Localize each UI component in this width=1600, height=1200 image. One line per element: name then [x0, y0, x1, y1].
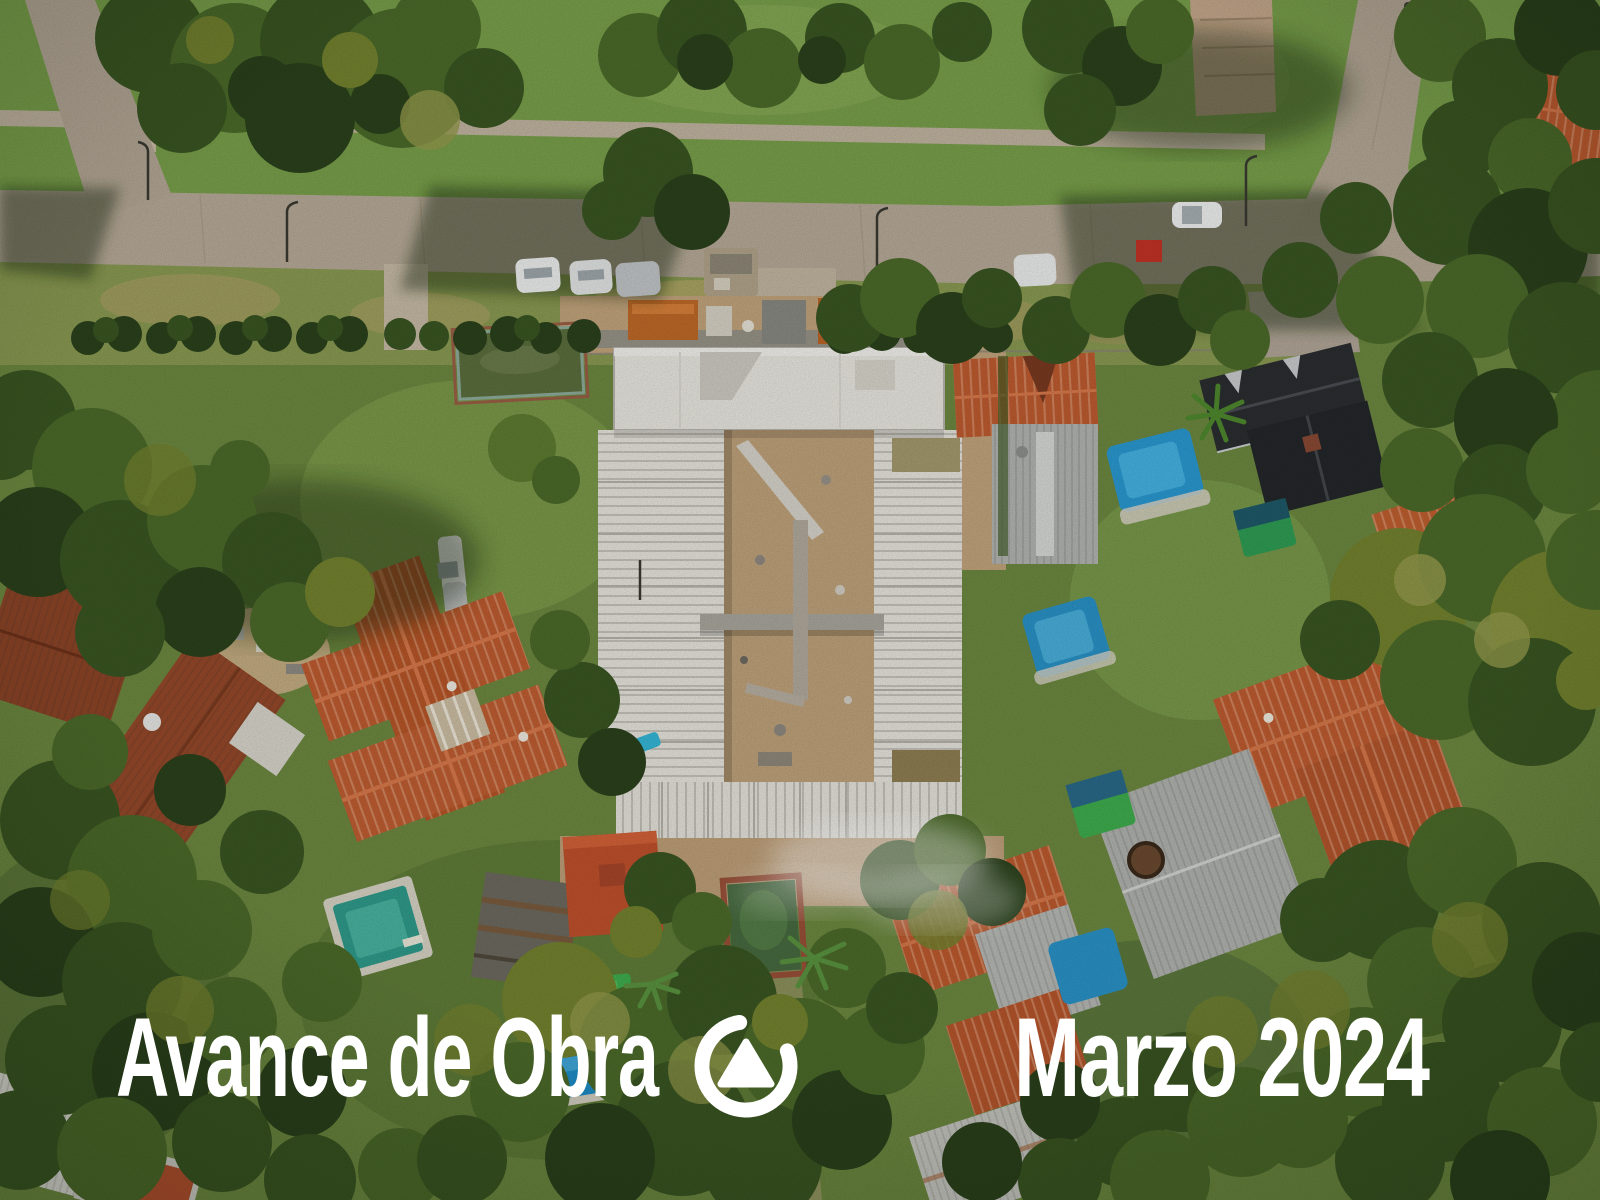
circle-triangle-logo-icon [686, 1006, 806, 1126]
caption-marzo-2024: Marzo 2024 [1014, 1002, 1429, 1114]
caption-avance-de-obra: Avance de Obra [116, 1002, 658, 1114]
aerial-photo: Avance de Obra Marzo 2024 [0, 0, 1600, 1200]
